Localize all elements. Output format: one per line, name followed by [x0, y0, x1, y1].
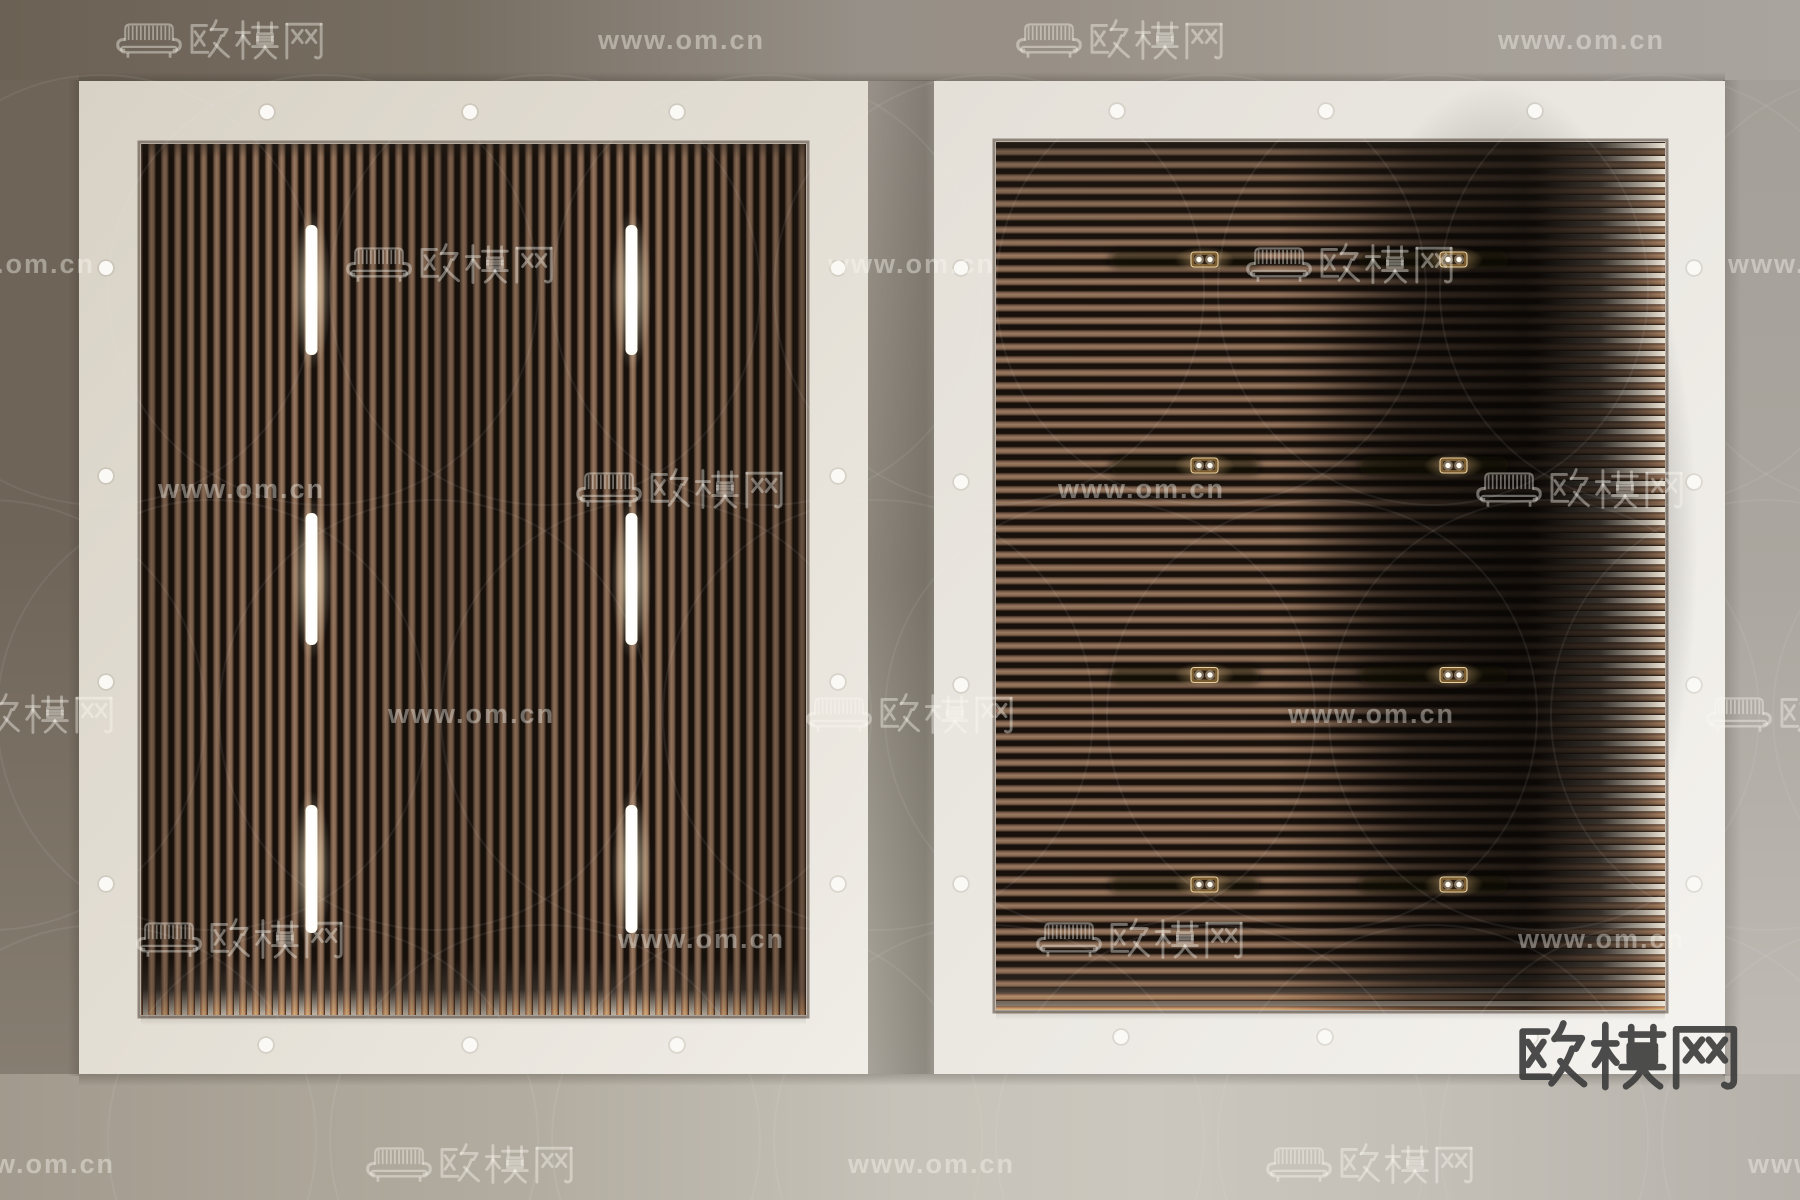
- svg-text:www.om.cn: www.om.cn: [827, 249, 995, 279]
- svg-text:www.om.cn: www.om.cn: [387, 699, 555, 729]
- svg-text:www.om.cn: www.om.cn: [617, 924, 785, 954]
- svg-text:www.om.cn: www.om.cn: [1497, 25, 1665, 55]
- svg-text:www.om.cn: www.om.cn: [597, 25, 765, 55]
- svg-text:www.om.cn: www.om.cn: [1727, 249, 1800, 279]
- svg-text:www.om.cn: www.om.cn: [1287, 699, 1455, 729]
- svg-text:www.om.cn: www.om.cn: [1747, 1149, 1800, 1179]
- svg-text:www.om.cn: www.om.cn: [157, 474, 325, 504]
- svg-text:www.om.cn: www.om.cn: [0, 1149, 115, 1179]
- svg-text:www.om.cn: www.om.cn: [1057, 474, 1225, 504]
- svg-text:www.om.cn: www.om.cn: [1517, 924, 1685, 954]
- svg-text:www.om.cn: www.om.cn: [0, 249, 95, 279]
- svg-text:www.om.cn: www.om.cn: [847, 1149, 1015, 1179]
